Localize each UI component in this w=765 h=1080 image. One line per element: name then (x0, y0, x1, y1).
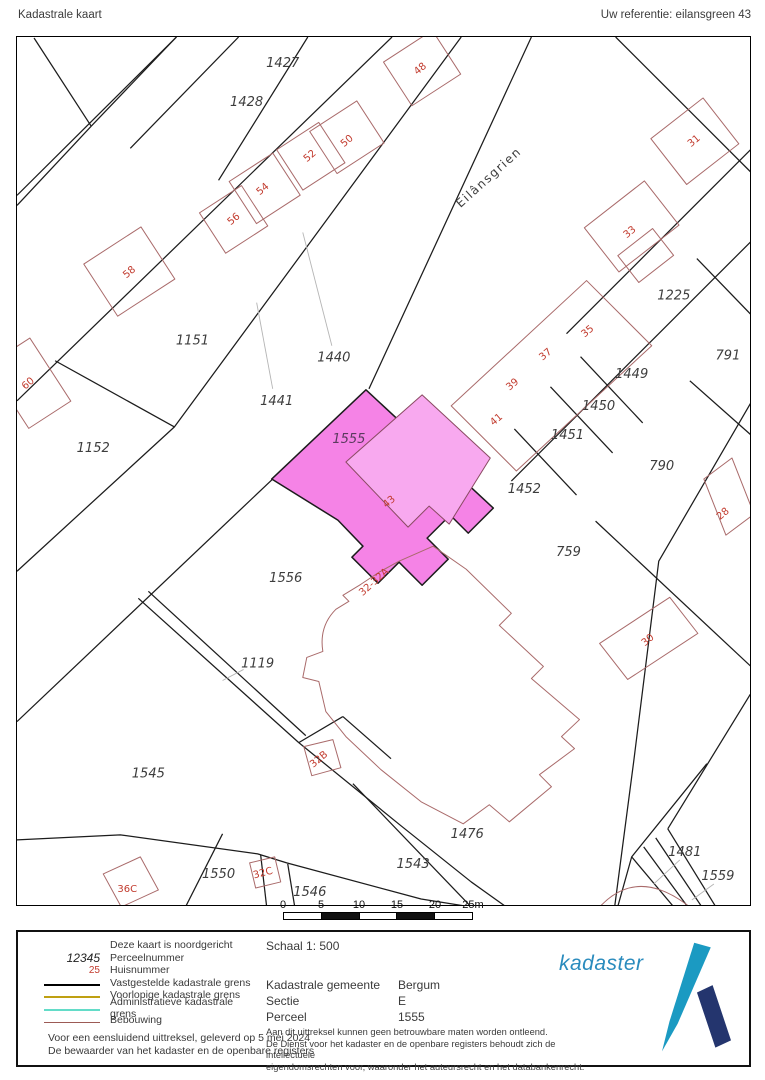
scale-segment (397, 913, 435, 919)
house-number-label: 33 (622, 224, 639, 241)
house-number-label: 30 (640, 632, 657, 649)
sectie-value: E (398, 993, 406, 1009)
sectie-label: Sectie (266, 993, 398, 1009)
disclaimer-line-2: De Dienst voor het kadaster en de openba… (266, 1039, 596, 1062)
gemeente-value: Bergum (398, 977, 440, 993)
parcel-label: 1452 (508, 482, 541, 497)
parcel-label: 1550 (202, 867, 235, 882)
parcel-label: 790 (649, 459, 674, 474)
cadastral-map-svg: 1427142812257911151144014411449145014511… (17, 37, 750, 905)
house-number-label: 41 (488, 412, 505, 429)
legend-info: Schaal 1: 500 Kadastrale gemeenteBergum … (266, 939, 566, 1025)
administratieve-grens-line (44, 1009, 100, 1011)
house-number-label: 35 (580, 323, 597, 340)
perceelnummer-sample: 12345 (67, 951, 100, 965)
house-number-label: 39 (504, 377, 521, 394)
house-number-label: 54 (255, 181, 272, 198)
house-number-label: 58 (121, 264, 138, 281)
house-number-label: 31 (686, 133, 703, 150)
vastgestelde-grens-label: Vastgestelde kadastrale grens (110, 977, 250, 989)
parcel-label: 1152 (77, 441, 110, 456)
scale-tick: 0 (280, 899, 286, 911)
parcel-label: 1119 (241, 656, 274, 671)
parcel-label: 1440 (317, 351, 350, 366)
house-number-label: 48 (412, 61, 429, 78)
parcel-label: 1559 (701, 869, 734, 884)
house-number-label: 50 (339, 133, 356, 150)
house-number-label: 37 (537, 347, 554, 364)
house-number-label: 60 (20, 376, 37, 393)
parcel-label: 1543 (397, 857, 430, 872)
perceel-value: 1555 (398, 1009, 425, 1025)
street-name-label: Eilânsgrien (453, 144, 524, 210)
gemeente-label: Kadastrale gemeente (266, 977, 398, 993)
house-number-label: 36C (117, 884, 137, 895)
parcel-label: 1555 (332, 432, 365, 447)
parcel-label: 791 (716, 349, 741, 364)
page: { "header": { "title": "Kadastrale kaart… (0, 0, 765, 1080)
house-number-label: 52 (302, 148, 319, 165)
reference-text: Uw referentie: eilansgreen 43 (601, 9, 751, 21)
scale-tick: 5 (318, 899, 324, 911)
kadaster-logo: kadaster (559, 938, 737, 1060)
scale-segment (322, 913, 360, 919)
disclaimer-line-1: Aan dit uittreksel kunnen geen betrouwba… (266, 1027, 596, 1039)
legend-symbols: Deze kaart is noordgericht 12345Perceeln… (32, 939, 262, 1027)
scale-tick: 25m (462, 899, 483, 911)
kadaster-logo-text: kadaster (559, 952, 644, 976)
scale-segment (435, 913, 472, 919)
map-panel: 1427142812257911151144014411449145014511… (16, 36, 751, 906)
leader-lines (223, 232, 714, 900)
parcel-label: 1427 (266, 56, 300, 71)
kadaster-logo-mark (639, 938, 731, 1058)
scale-segment (284, 913, 322, 919)
parcel-label: 1225 (657, 289, 690, 304)
parcel-label: 759 (556, 545, 581, 560)
north-note: Deze kaart is noordgericht (110, 939, 233, 951)
scale-bar: 0 5 10 15 20 25m (283, 899, 473, 923)
scale-segment (360, 913, 398, 919)
parcel-label: 1151 (176, 334, 209, 349)
parcel-label: 1441 (260, 394, 293, 409)
parcel-label: 1449 (615, 367, 648, 382)
highlighted-parcel-1555 (272, 390, 494, 585)
page-title: Kadastrale kaart (18, 9, 102, 21)
vastgestelde-grens-line (44, 984, 100, 986)
bebouwing-label: Bebouwing (110, 1014, 162, 1026)
perceelnummer-label: Perceelnummer (110, 952, 184, 964)
house-number-label: 56 (226, 211, 243, 228)
parcel-label: 1546 (293, 885, 326, 900)
parcel-label: 1481 (668, 845, 701, 860)
parcel-label: 1450 (582, 399, 615, 414)
bebouwing-line (44, 1022, 100, 1024)
huisnummer-sample: 25 (89, 965, 100, 976)
parcel-label: 1451 (551, 428, 584, 443)
huisnummer-label: Huisnummer (110, 964, 170, 976)
parcel-label: 1556 (269, 571, 302, 586)
voorlopige-grens-line (44, 996, 100, 998)
legend-disclaimer: Aan dit uittreksel kunnen geen betrouwba… (266, 1027, 596, 1073)
schaal-label: Schaal 1: 500 (266, 939, 566, 953)
disclaimer-line-3: eigendomsrechten voor, waaronder het aut… (266, 1062, 596, 1074)
scale-tick: 20 (429, 899, 441, 911)
house-number-label: 32C (252, 866, 274, 882)
house-number-label: 28 (715, 506, 732, 523)
scale-tick: 10 (353, 899, 365, 911)
scale-bar-segments (283, 912, 473, 920)
perceel-label: Perceel (266, 1009, 398, 1025)
parcel-label: 1545 (132, 767, 165, 782)
parcel-label: 1428 (230, 95, 263, 110)
legend-box: Deze kaart is noordgericht 12345Perceeln… (16, 930, 751, 1067)
scale-bar-ticks: 0 5 10 15 20 25m (283, 899, 473, 911)
scale-tick: 15 (391, 899, 403, 911)
parcel-label: 1476 (451, 827, 484, 842)
